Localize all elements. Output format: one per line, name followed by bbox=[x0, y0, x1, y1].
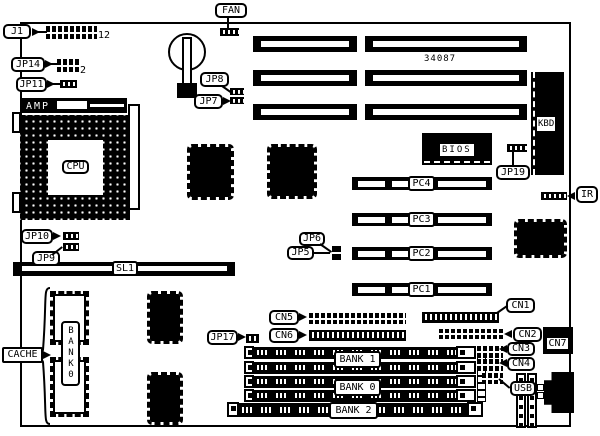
callout-ir: IR bbox=[576, 186, 598, 203]
jp5-jumper bbox=[332, 254, 341, 260]
pc3-label: PC3 bbox=[412, 215, 430, 225]
isa-slot bbox=[365, 104, 527, 120]
cache-label: CACHE bbox=[7, 350, 37, 360]
jp11-label: JP11 bbox=[19, 80, 43, 90]
cn3-pointer bbox=[499, 345, 507, 353]
ir-header bbox=[541, 192, 567, 200]
isa-slot bbox=[253, 104, 357, 120]
usb-label: USB bbox=[514, 384, 532, 394]
isa-slot bbox=[365, 70, 527, 86]
jp10-pointer bbox=[53, 232, 61, 240]
callout-cn4: CN4 bbox=[507, 357, 535, 371]
j1-pin-number: 12 bbox=[98, 31, 110, 41]
bios-label: BIOS bbox=[439, 143, 475, 157]
pc4-label-box: PC4 bbox=[408, 176, 435, 191]
callout-cn5: CN5 bbox=[269, 310, 299, 325]
jp6-label: JP6 bbox=[303, 234, 321, 244]
socket-lever bbox=[128, 104, 140, 210]
kbd-label: KBD bbox=[537, 117, 555, 131]
socket-tab-top bbox=[12, 112, 21, 133]
callout-jp17: JP17 bbox=[207, 330, 238, 345]
j1-label: J1 bbox=[11, 27, 23, 37]
isa-slot bbox=[365, 36, 527, 52]
cache-bank0-vertical-label: BANK0 bbox=[61, 321, 80, 386]
cn2-label: CN2 bbox=[518, 330, 536, 340]
jp19-lead-line bbox=[512, 152, 514, 166]
callout-fan: FAN bbox=[215, 3, 247, 18]
power-pad bbox=[537, 384, 544, 391]
pc3-label-box: PC3 bbox=[408, 212, 435, 227]
board-part-number: 34087 bbox=[424, 55, 456, 64]
cn6-pointer bbox=[299, 331, 307, 339]
power-pad bbox=[537, 392, 544, 399]
socket-tab-bottom bbox=[12, 192, 21, 213]
simm-latch bbox=[227, 402, 239, 417]
jp7-jumper bbox=[230, 97, 244, 104]
simm-latch bbox=[456, 375, 476, 388]
callout-jp10: JP10 bbox=[21, 229, 53, 244]
kbd-connector: KBD bbox=[531, 72, 564, 175]
sl1-label-box: SL1 bbox=[112, 261, 138, 276]
simm-latch bbox=[456, 346, 476, 359]
jp5-label: JP5 bbox=[291, 248, 309, 258]
ir-label: IR bbox=[581, 190, 593, 200]
callout-j1: J1 bbox=[3, 24, 31, 39]
cn6-label: CN6 bbox=[275, 331, 293, 341]
pc2-label-box: PC2 bbox=[408, 246, 435, 261]
callout-cn7: CN7 bbox=[545, 336, 570, 351]
cn6-header bbox=[309, 330, 406, 341]
cpu-label: CPU bbox=[66, 162, 84, 172]
jp19-jumper bbox=[507, 144, 527, 152]
cn3-label: CN3 bbox=[512, 344, 530, 354]
chip bbox=[187, 144, 234, 200]
amp-key-slot bbox=[57, 101, 87, 109]
jp9-jumper bbox=[63, 243, 79, 251]
cn1-label: CN1 bbox=[511, 301, 529, 311]
jp14-lead-line bbox=[51, 63, 58, 65]
chip bbox=[147, 372, 183, 425]
jp14-pin-number: 2 bbox=[80, 66, 86, 76]
ir-pointer bbox=[567, 192, 575, 200]
cn2-header bbox=[439, 329, 503, 339]
callout-cpu: CPU bbox=[62, 160, 89, 174]
pc1-label-box: PC1 bbox=[408, 282, 435, 297]
amp-key-line bbox=[90, 104, 124, 107]
battery-stem bbox=[182, 37, 192, 87]
cache-pointer bbox=[43, 351, 51, 359]
bank1-label-box: BANK 1 bbox=[334, 351, 381, 368]
bank2-label-box: BANK 2 bbox=[329, 402, 378, 419]
jp11-jumper bbox=[60, 80, 77, 88]
bank1-label: BANK 1 bbox=[339, 355, 375, 365]
amp-connector: AMP bbox=[22, 98, 127, 113]
simm-latch bbox=[467, 402, 483, 417]
cn5-header bbox=[309, 313, 406, 324]
callout-usb: USB bbox=[510, 381, 536, 396]
jp7-label: JP7 bbox=[199, 97, 217, 107]
chip bbox=[267, 144, 317, 199]
bank0-label-box: BANK 0 bbox=[334, 379, 381, 396]
fan-connector bbox=[220, 28, 239, 36]
kbd-dashed-edge bbox=[533, 72, 535, 175]
cn5-pointer bbox=[299, 313, 307, 321]
simm-latch bbox=[244, 361, 254, 374]
jp17-pointer bbox=[238, 333, 246, 341]
motherboard-diagram: FAN J1 12 JP14 2 JP11 AMP CPU JP8 JP7 34… bbox=[0, 0, 600, 436]
bank2-label: BANK 2 bbox=[335, 406, 371, 416]
simm-latch bbox=[244, 346, 254, 359]
bank0-label: BANK 0 bbox=[339, 383, 375, 393]
simm-latch bbox=[244, 389, 254, 402]
pc1-label: PC1 bbox=[412, 285, 430, 295]
chip bbox=[147, 291, 183, 344]
cn7-label: CN7 bbox=[548, 339, 566, 349]
jp17-jumper bbox=[246, 334, 259, 343]
pc2-label: PC2 bbox=[412, 249, 430, 259]
jp7-pointer bbox=[223, 97, 231, 105]
callout-cn6: CN6 bbox=[269, 328, 299, 343]
jp10-jumper bbox=[63, 232, 79, 240]
callout-jp11: JP11 bbox=[16, 77, 47, 92]
fan-lead-line bbox=[227, 18, 229, 30]
amp-label: AMP bbox=[26, 101, 50, 112]
bios-dashed-edge bbox=[424, 161, 490, 163]
jp6-jumper bbox=[332, 246, 341, 252]
callout-jp5: JP5 bbox=[287, 246, 314, 260]
jp5-lead-line bbox=[314, 252, 330, 254]
callout-jp8: JP8 bbox=[200, 72, 229, 87]
simm-latch bbox=[456, 361, 476, 374]
cn2-pointer bbox=[504, 330, 512, 338]
isa-slot bbox=[253, 70, 357, 86]
chip bbox=[514, 219, 567, 258]
jp11-lead-line bbox=[53, 83, 60, 85]
sl1-label: SL1 bbox=[116, 264, 134, 274]
j1-header bbox=[46, 26, 97, 39]
cn1-header bbox=[422, 312, 499, 323]
jp14-header bbox=[57, 59, 79, 72]
j1-lead-line bbox=[38, 31, 47, 33]
pc4-label: PC4 bbox=[412, 179, 430, 189]
callout-jp7: JP7 bbox=[194, 94, 223, 109]
cn4-label: CN4 bbox=[512, 359, 530, 369]
callout-cn1: CN1 bbox=[506, 298, 535, 313]
isa-slot bbox=[253, 36, 357, 52]
callout-cache: CACHE bbox=[2, 347, 43, 363]
jp17-label: JP17 bbox=[210, 333, 234, 343]
cn5-label: CN5 bbox=[275, 313, 293, 323]
callout-jp19: JP19 bbox=[496, 165, 530, 180]
simm-latch bbox=[456, 389, 476, 402]
jp14-label: JP14 bbox=[16, 60, 40, 70]
bios-chip: BIOS bbox=[422, 133, 492, 165]
callout-cn2: CN2 bbox=[513, 327, 542, 342]
simm-latch bbox=[244, 375, 254, 388]
callout-cn3: CN3 bbox=[507, 342, 535, 356]
cn4-pointer bbox=[499, 359, 507, 367]
jp10-label: JP10 bbox=[25, 232, 49, 242]
callout-jp14: JP14 bbox=[11, 57, 45, 72]
cache-bank0-text: BANK0 bbox=[66, 326, 75, 381]
jp8-label: JP8 bbox=[205, 75, 223, 85]
fan-label: FAN bbox=[222, 6, 240, 16]
jp19-label: JP19 bbox=[501, 168, 525, 178]
